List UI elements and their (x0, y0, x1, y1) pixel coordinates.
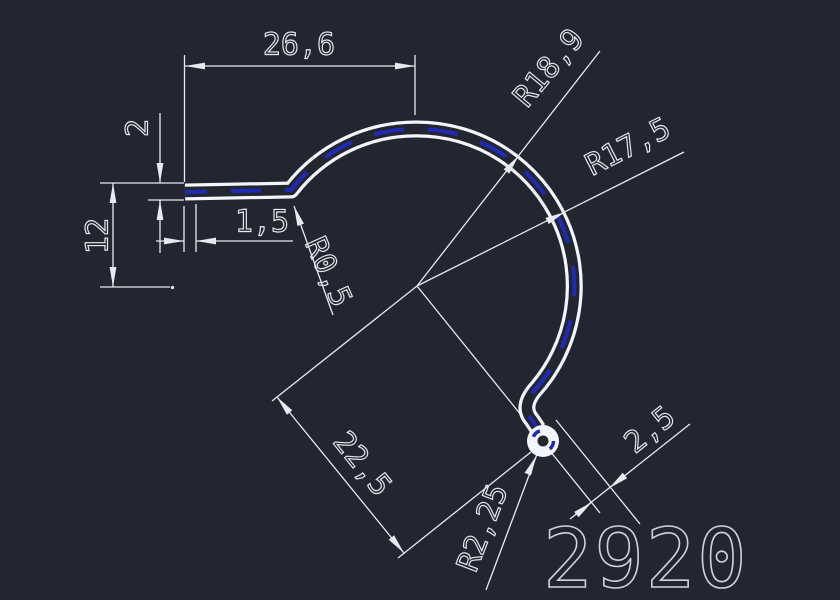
cad-drawing: 26,6 2 12 1,5 R0,5 R18,9 (0, 0, 840, 600)
ball-end-hole (538, 436, 549, 447)
dim-left-height-label: 12 (81, 218, 116, 254)
dim-tab-thickness-label: 2 (121, 119, 156, 137)
dim-tab-lip-label: 1,5 (235, 205, 289, 240)
definition-point (171, 286, 174, 289)
drawing-background (0, 0, 840, 600)
cad-drawing-canvas: 26,6 2 12 1,5 R0,5 R18,9 (0, 0, 840, 600)
part-number: 2920 (543, 512, 748, 600)
dim-top-width-label: 26,6 (263, 28, 335, 63)
